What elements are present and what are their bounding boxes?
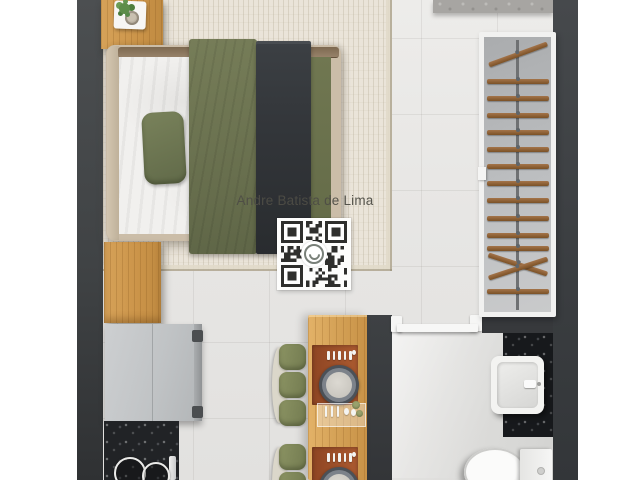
faucet-knob xyxy=(537,382,541,386)
toilet-tank xyxy=(520,449,552,480)
qr-code xyxy=(277,218,351,290)
chair-cushion xyxy=(279,444,306,470)
whatsapp-icon xyxy=(301,241,327,267)
sink xyxy=(491,356,544,414)
flush-button xyxy=(537,467,545,475)
chair-cushion xyxy=(279,344,306,370)
faucet xyxy=(524,380,536,388)
chair-cushion xyxy=(279,472,306,480)
watermark-name: Andre Batista de Lima xyxy=(195,193,415,209)
floor-plan-canvas: Andre Batista de Lima xyxy=(0,0,640,480)
dining-chair xyxy=(272,444,306,480)
dining-chair xyxy=(272,344,306,426)
chair-cushion xyxy=(279,400,306,426)
chair-cushion xyxy=(279,372,306,398)
